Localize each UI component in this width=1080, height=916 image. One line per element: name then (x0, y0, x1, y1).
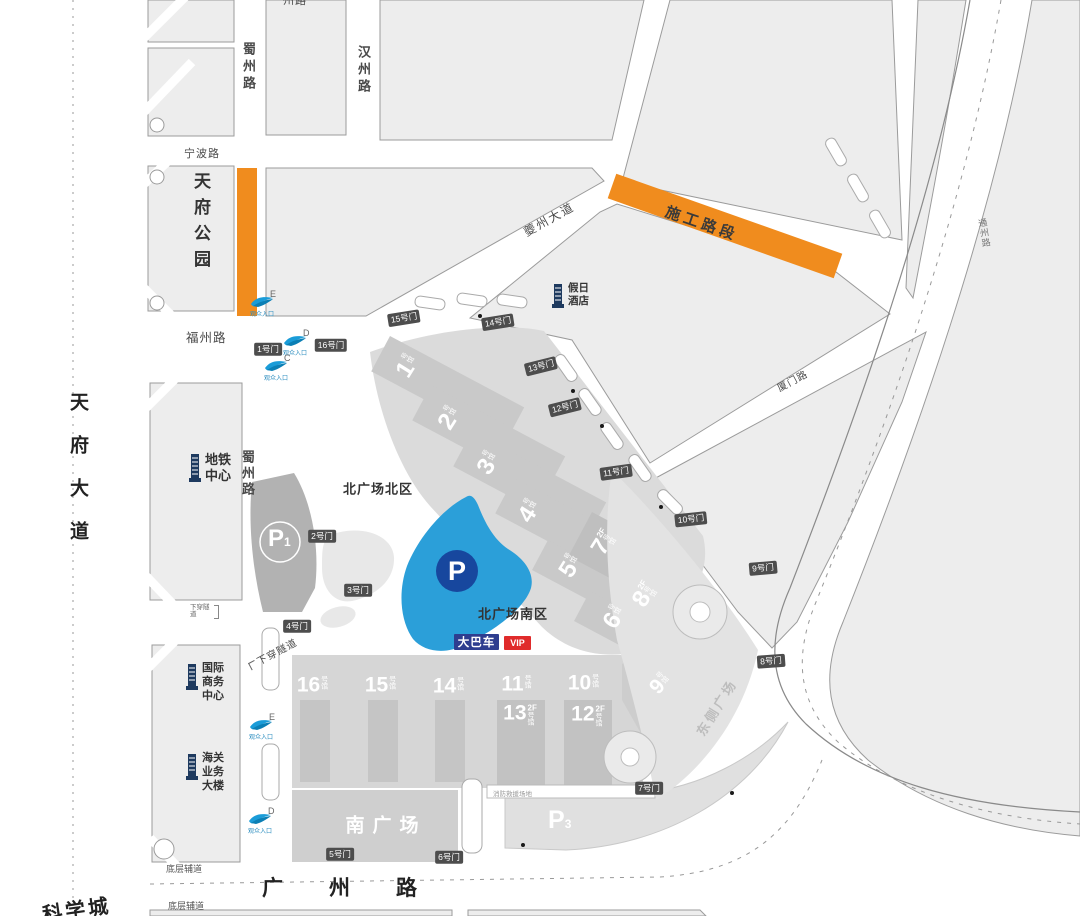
venue-map: 天府大道 科学城 广州路 蜀州路 汉州路 宁波路 福州路 蜀州路 夔州大道 厦门… (0, 0, 1080, 916)
hall-16: 16号馆 (297, 677, 329, 696)
south-plaza-label: 南广场 (345, 811, 426, 838)
gate-4: 4号门 (283, 620, 311, 633)
gate-7: 7号门 (635, 782, 663, 795)
road-guangzhou: 广州路 (262, 872, 463, 902)
map-canvas (0, 0, 1080, 916)
road-tianfu-avenue: 天府大道 (64, 392, 91, 564)
road-shuzhou-mid: 蜀州路 (238, 450, 257, 498)
gate-16: 16号门 (315, 339, 347, 352)
hall-14: 14号馆 (433, 678, 465, 697)
construction-bar-shuzhou (237, 168, 257, 316)
hall-10: 10号馆 (568, 675, 600, 694)
road-service-lower: 底层辅道 (168, 899, 204, 912)
entrance-d-south: D 观众入口 (248, 812, 278, 835)
gate-1: 1号门 (254, 343, 282, 356)
hall-12: 122F号馆 (571, 706, 605, 729)
road-top-clipped: 州路 (283, 0, 307, 8)
road-service-upper: 底层辅道 (166, 862, 202, 875)
holiday-hotel: 假日酒店 (552, 282, 592, 315)
hall-11: 11号馆 (501, 676, 532, 695)
customs-building: 海关业务大楼 (186, 752, 228, 793)
hall-15: 15号馆 (365, 677, 397, 696)
tunnel-small-label: 下穿隧道 (190, 604, 212, 619)
north-plaza-south-label: 北广场南区 (478, 604, 548, 623)
fire-note-label: 消防救援场地 (493, 788, 532, 798)
road-ningbo: 宁波路 (184, 145, 220, 161)
entrance-c-north: C 观众入口 (264, 359, 294, 382)
p1-parking-label: P1 (268, 527, 291, 551)
building-icon (552, 282, 565, 315)
road-shuzhou-top: 蜀州路 (239, 42, 258, 93)
road-fuzhou: 福州路 (186, 327, 227, 346)
gate-2: 2号门 (308, 530, 336, 543)
hall-13: 132F号馆 (503, 705, 537, 728)
gate-6: 6号门 (435, 851, 463, 864)
vip-badge: VIP (504, 636, 531, 650)
main-parking-label: P (448, 558, 466, 585)
gate-8: 8号门 (757, 654, 786, 668)
building-icon (186, 752, 199, 787)
metro-center-block (150, 383, 242, 600)
entrance-e-south: E 观众入口 (249, 718, 279, 741)
north-plaza-north-label: 北广场北区 (343, 479, 413, 498)
building-icon (186, 662, 199, 697)
intl-business-center: 国际商务中心 (186, 662, 228, 703)
tianfu-park-label: 天府公园 (188, 172, 213, 276)
road-hanzhou: 汉州路 (354, 45, 373, 96)
gate-5: 5号门 (326, 848, 354, 861)
bus-badge: 大巴车 (454, 634, 499, 650)
gate-3: 3号门 (344, 584, 372, 597)
building-icon (188, 452, 202, 489)
entrance-e-north: E 观众入口 (250, 295, 280, 318)
metro-center: 地铁中心 (188, 452, 233, 489)
p3-parking-label: P3 (548, 808, 571, 833)
gate-9: 9号门 (749, 561, 778, 576)
